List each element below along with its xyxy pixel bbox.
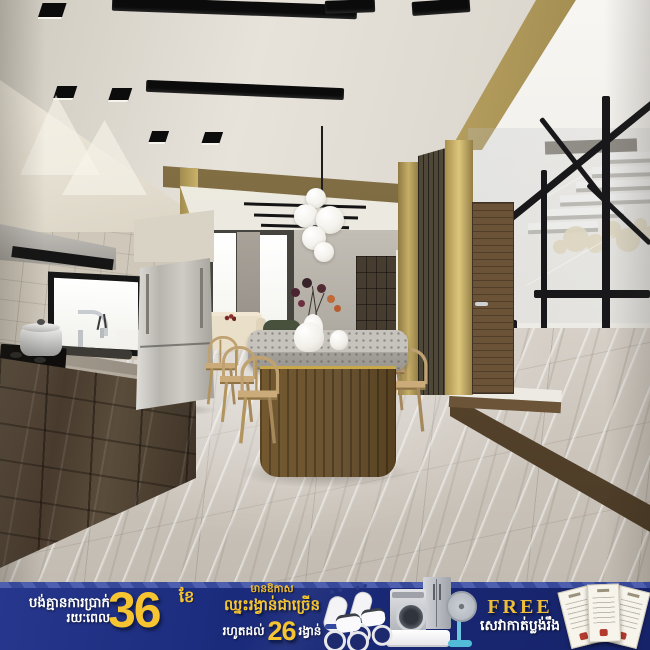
door-handle bbox=[475, 302, 488, 306]
stove-burner bbox=[34, 357, 46, 363]
stair-railing-post bbox=[541, 170, 547, 335]
installment-offer-text: បង់គ្មានការប្រាក់ រយៈពេល bbox=[6, 595, 110, 626]
installment-months-unit: ខែ bbox=[179, 586, 194, 610]
interior-scene bbox=[0, 0, 650, 582]
gold-wall-column bbox=[445, 140, 473, 395]
scooter-wheel bbox=[347, 631, 369, 650]
air-conditioner-icon bbox=[386, 630, 450, 647]
chair-back bbox=[240, 356, 279, 394]
pot-lid-knob bbox=[37, 319, 45, 325]
chair-splat bbox=[255, 361, 257, 393]
flower-bloom bbox=[334, 305, 341, 312]
washer-control-panel bbox=[392, 592, 424, 598]
fan-base bbox=[448, 640, 472, 647]
flower-bloom bbox=[302, 278, 312, 288]
prize-headline: ឈ្នះរង្វាន់ជាច្រើន bbox=[206, 596, 338, 618]
chair-leg bbox=[268, 397, 276, 443]
document-header bbox=[627, 592, 639, 598]
pendant-light-globe bbox=[314, 242, 334, 262]
prize-unit-text: រង្វាន់ bbox=[299, 623, 322, 641]
flower-bloom bbox=[317, 284, 326, 293]
document-stamp bbox=[600, 629, 608, 636]
wishbone-chair bbox=[238, 356, 277, 448]
decor-vase bbox=[330, 330, 348, 350]
chair-leg bbox=[239, 397, 247, 443]
document-header bbox=[597, 589, 609, 592]
stair-railing-bar bbox=[534, 290, 650, 298]
back-panel-door bbox=[356, 256, 396, 338]
washer-door bbox=[396, 602, 426, 632]
ceiling-light-strip bbox=[325, 0, 375, 14]
interior-door bbox=[472, 202, 514, 394]
stove-burner bbox=[10, 352, 22, 358]
flower-bloom bbox=[291, 288, 300, 297]
window-pane bbox=[260, 235, 287, 328]
chair-splat bbox=[235, 350, 237, 378]
fridge-icon-handle bbox=[439, 584, 441, 600]
land-title-document-icon bbox=[562, 582, 646, 648]
chair-leg bbox=[207, 368, 213, 404]
pendant-light-stem bbox=[321, 126, 323, 192]
fridge-handle bbox=[146, 274, 149, 334]
document-sheet bbox=[587, 583, 621, 642]
document-header bbox=[568, 592, 580, 598]
document-stamp bbox=[579, 632, 588, 641]
installment-months-number: 36 bbox=[108, 582, 160, 638]
washing-machine-icon bbox=[390, 589, 426, 635]
island-wood-base bbox=[260, 366, 396, 477]
pendant-light-globe bbox=[294, 204, 318, 228]
scooter-wheel bbox=[372, 625, 393, 646]
fridge-icon-split bbox=[436, 579, 437, 627]
flower-bloom bbox=[327, 295, 335, 303]
scooter-wheel bbox=[324, 630, 346, 650]
chair-leg bbox=[417, 388, 425, 432]
decor-vase bbox=[294, 322, 324, 352]
flowers-decor bbox=[224, 314, 236, 322]
fridge-handle bbox=[200, 268, 203, 328]
promo-poster: បង់គ្មានការប្រាក់ រយៈពេល 36 ខែ មានឱកាស ឈ… bbox=[0, 0, 650, 650]
chair-leg bbox=[221, 382, 228, 422]
scooter-mirror bbox=[338, 588, 342, 592]
prize-upto-text: រហូតដល់ bbox=[223, 623, 265, 641]
stair-railing-post bbox=[602, 96, 610, 334]
scooter-mirror bbox=[330, 590, 334, 594]
cooking-pot bbox=[20, 328, 62, 356]
faucet-stem bbox=[78, 330, 83, 348]
installment-line1: បង់គ្មានការប្រាក់ bbox=[6, 595, 110, 611]
installment-line2: រយៈពេល bbox=[6, 611, 110, 626]
faucet-spout bbox=[100, 328, 104, 338]
document-lines bbox=[592, 597, 615, 624]
scooter-icon bbox=[322, 588, 364, 648]
prize-count-number: 26 bbox=[268, 618, 296, 645]
flower-bloom bbox=[298, 300, 305, 307]
prize-count-line: រហូតដល់ 26 រង្វាន់ bbox=[210, 618, 334, 645]
fridge-icon-handle bbox=[433, 584, 435, 600]
